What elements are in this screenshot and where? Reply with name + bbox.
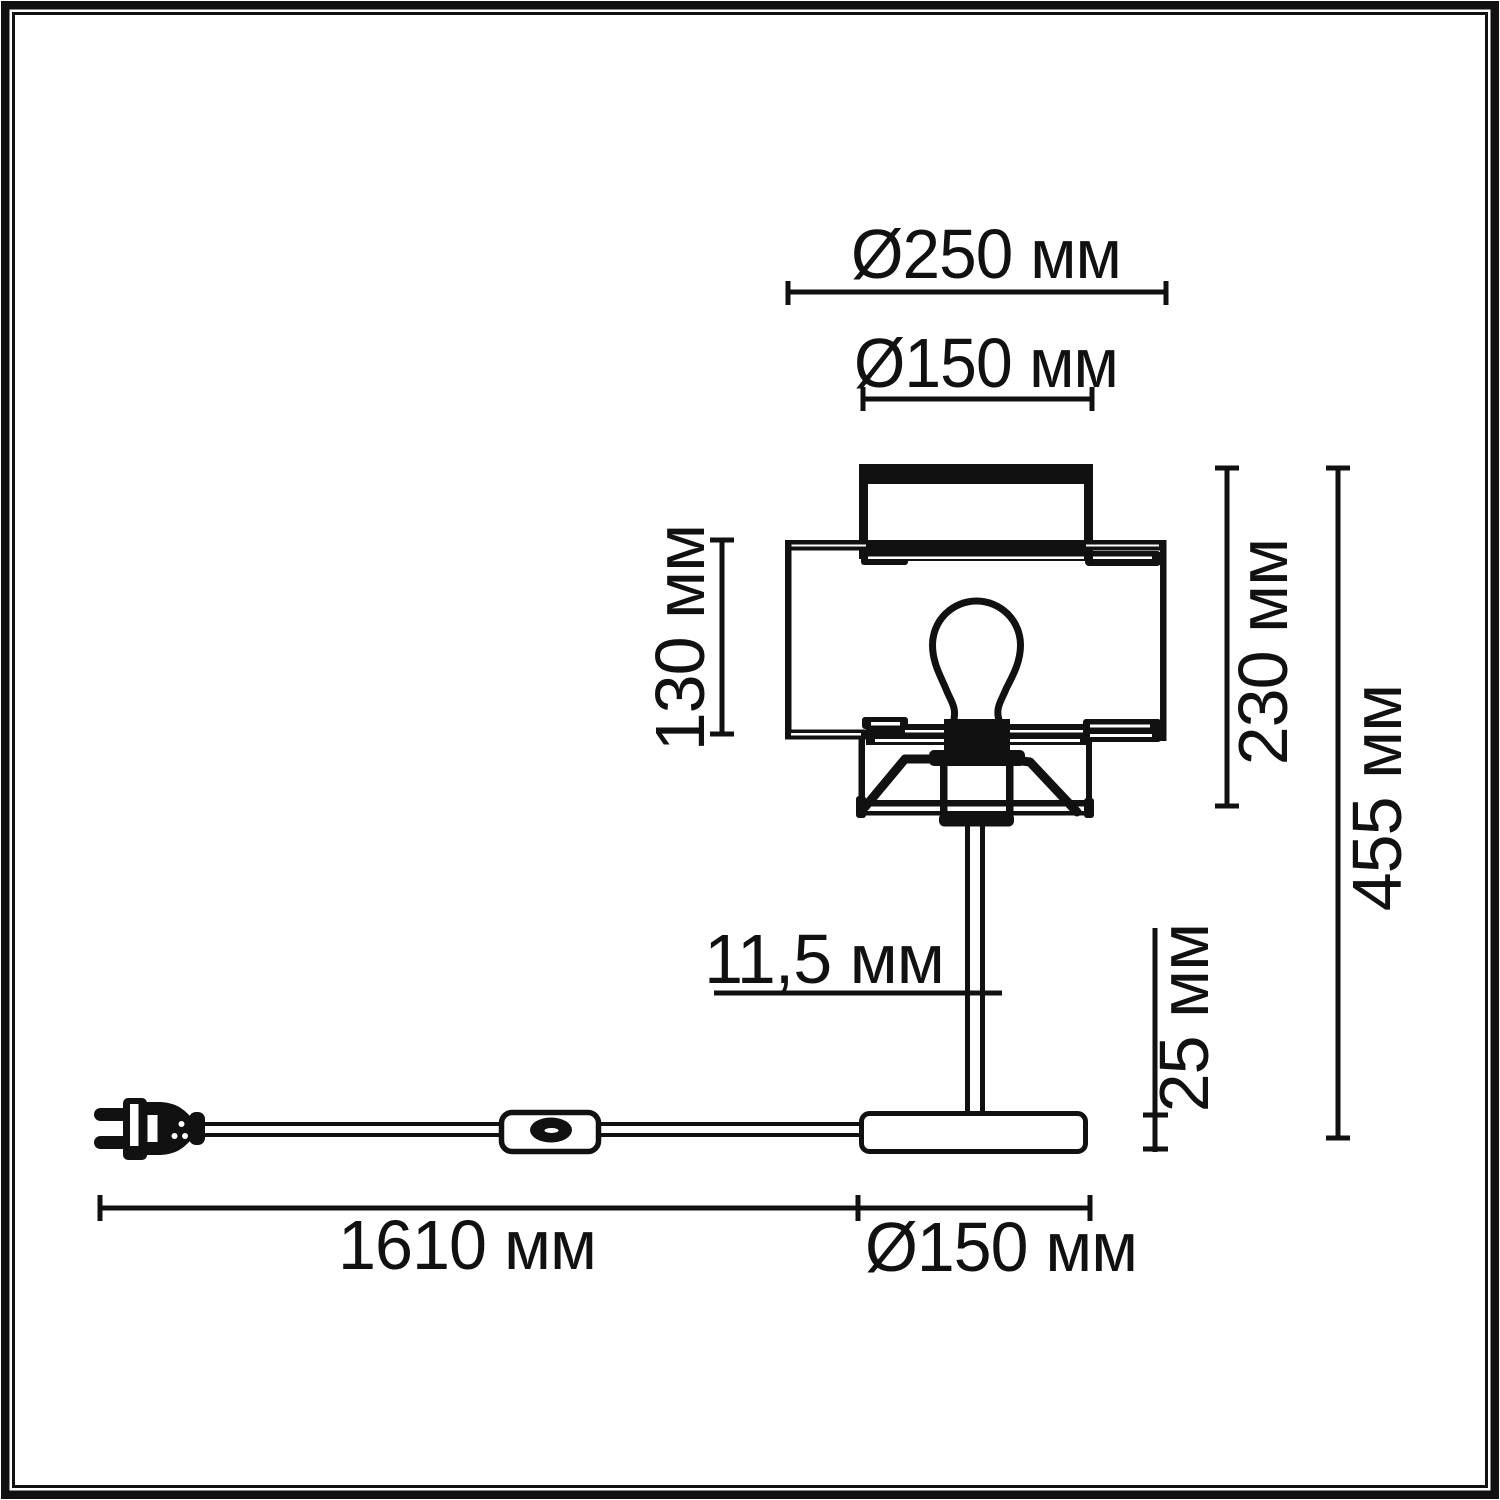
svg-text:230 мм: 230 мм: [1224, 539, 1302, 766]
svg-text:Ø150 мм: Ø150 мм: [865, 1208, 1137, 1286]
svg-text:130 мм: 130 мм: [641, 525, 719, 752]
svg-text:Ø250 мм: Ø250 мм: [851, 215, 1121, 293]
svg-text:455 мм: 455 мм: [1338, 685, 1416, 912]
svg-text:25 мм: 25 мм: [1145, 924, 1223, 1113]
svg-text:Ø150 мм: Ø150 мм: [854, 324, 1118, 402]
svg-text:1610 мм: 1610 мм: [338, 1206, 596, 1284]
svg-text:11,5 мм: 11,5 мм: [704, 920, 944, 998]
